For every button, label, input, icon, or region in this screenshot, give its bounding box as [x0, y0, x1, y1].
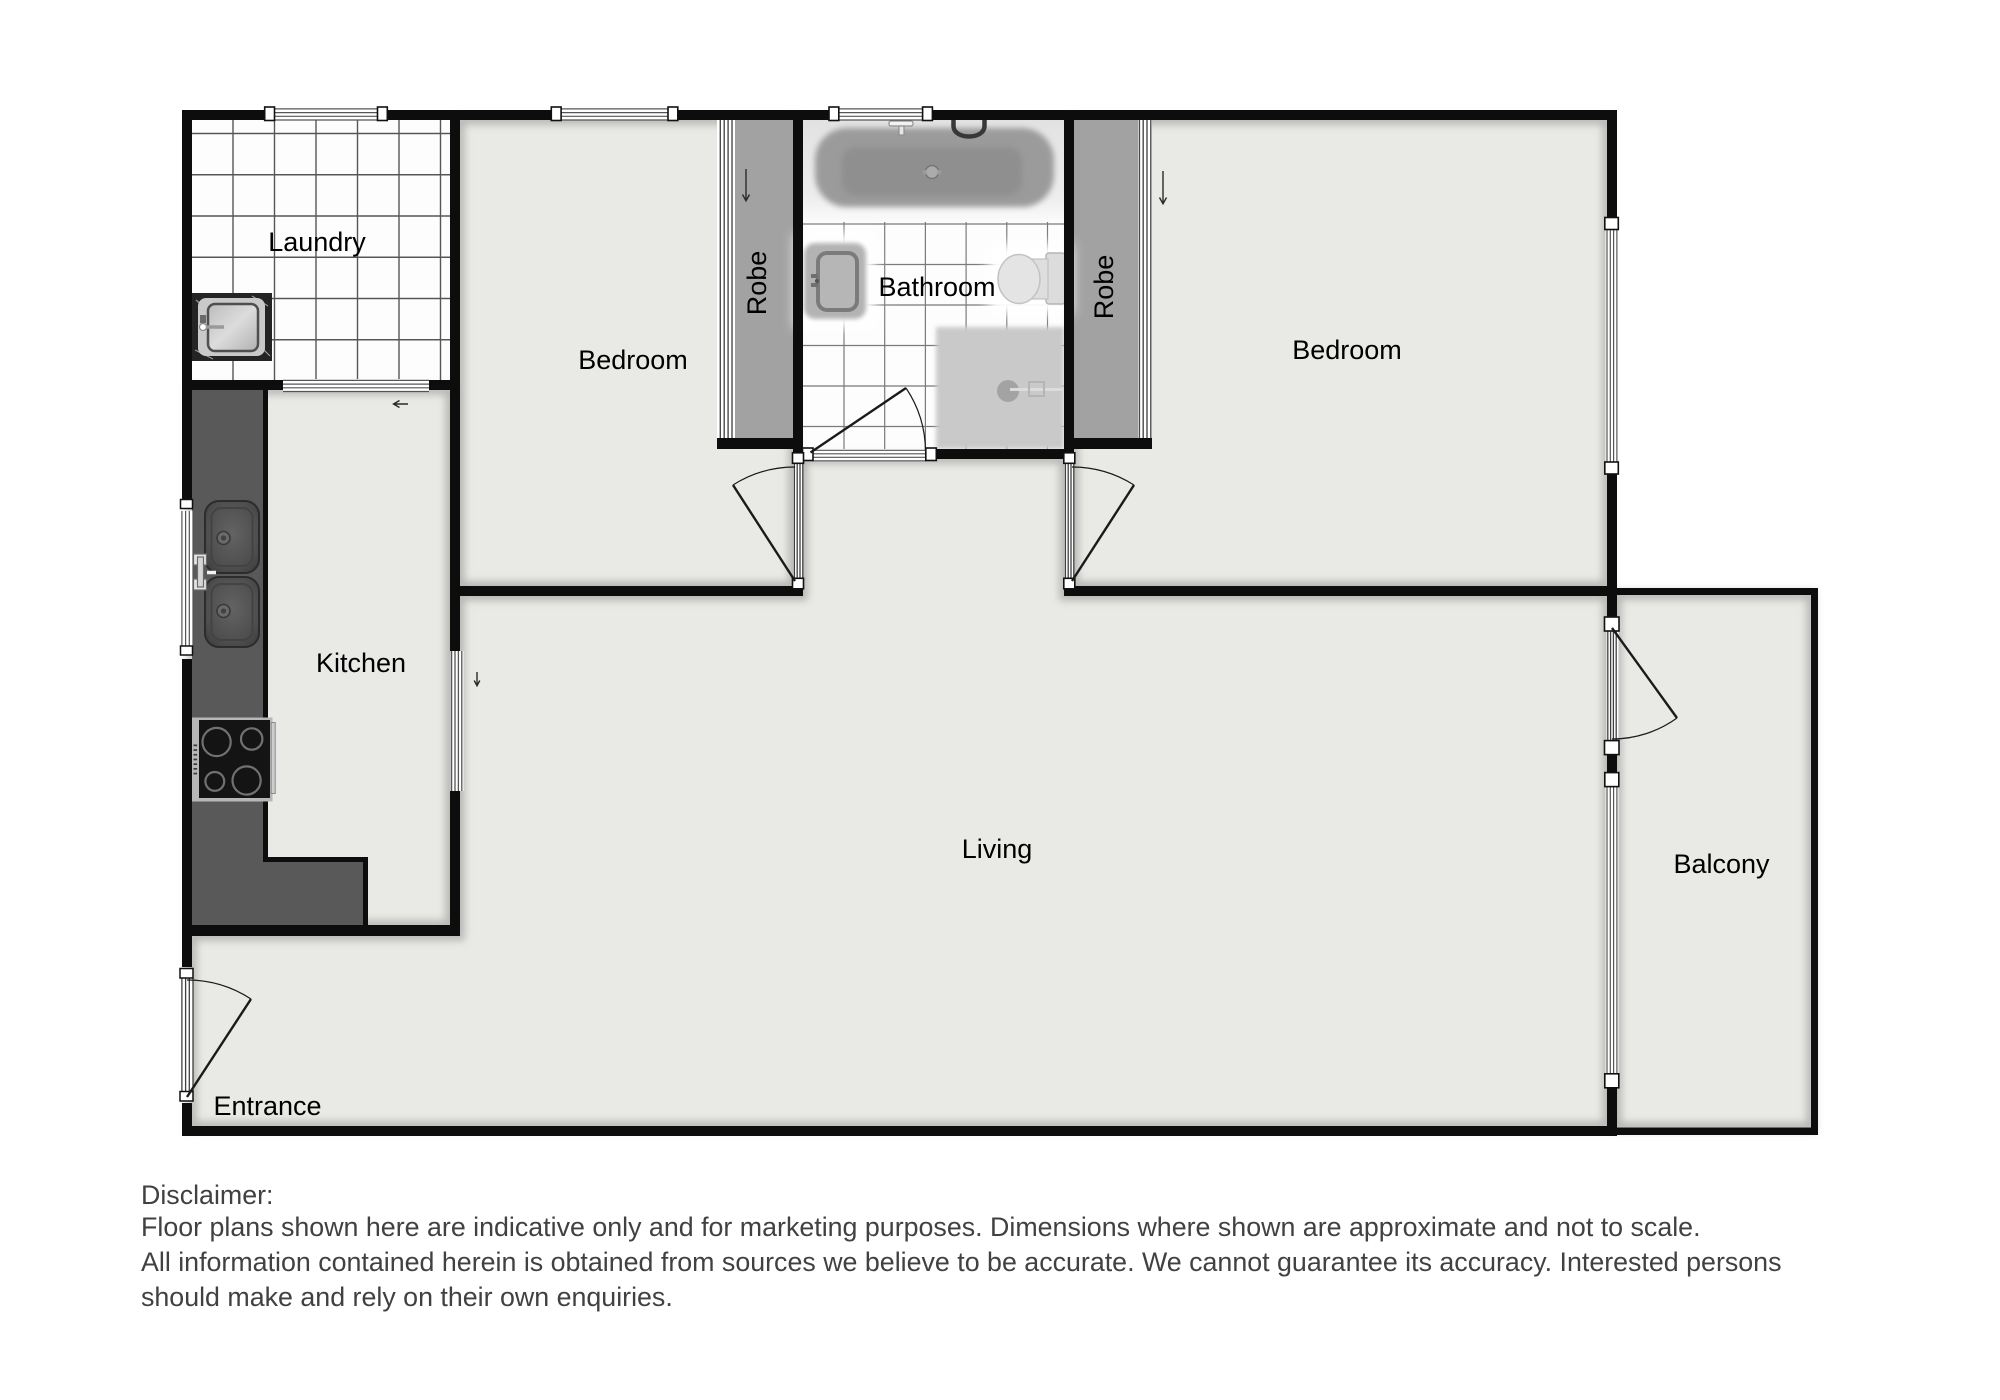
svg-text:Robe: Robe [742, 251, 772, 316]
svg-text:Laundry: Laundry [268, 227, 366, 257]
svg-text:Floor plans shown here are ind: Floor plans shown here are indicative on… [141, 1212, 1701, 1242]
svg-text:Bedroom: Bedroom [578, 345, 688, 375]
svg-text:should make and rely on their: should make and rely on their own enquir… [141, 1282, 673, 1312]
svg-text:Bathroom: Bathroom [878, 272, 995, 302]
svg-text:Robe: Robe [1089, 255, 1119, 320]
svg-text:Balcony: Balcony [1673, 849, 1770, 879]
svg-text:Living: Living [962, 834, 1033, 864]
svg-text:Disclaimer:: Disclaimer: [141, 1180, 274, 1210]
svg-text:Bedroom: Bedroom [1292, 335, 1402, 365]
svg-text:Kitchen: Kitchen [316, 648, 406, 678]
svg-text:All information contained here: All information contained herein is obta… [141, 1247, 1782, 1277]
svg-text:Entrance: Entrance [213, 1091, 321, 1121]
